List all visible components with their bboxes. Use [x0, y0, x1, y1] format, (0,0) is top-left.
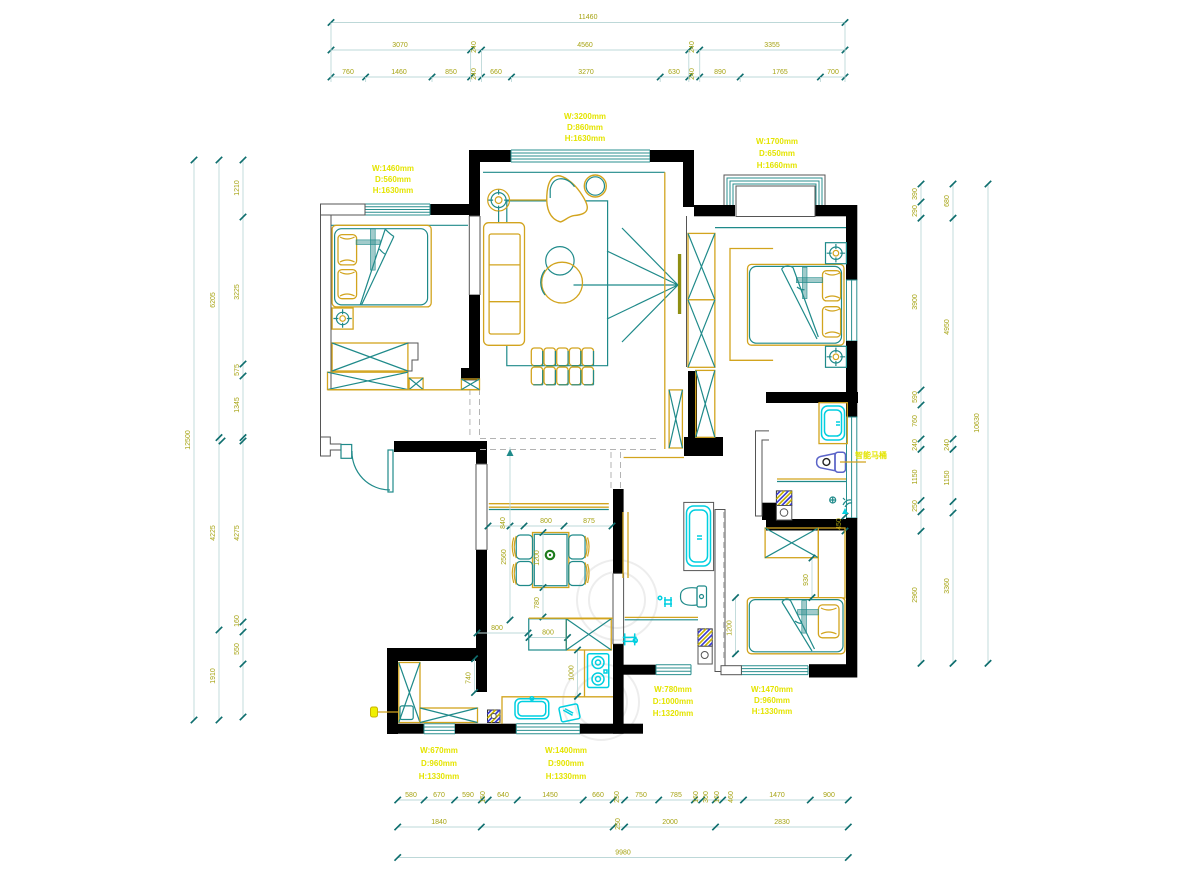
svg-text:1460: 1460	[391, 69, 407, 76]
svg-text:3360: 3360	[944, 578, 951, 594]
svg-text:240: 240	[471, 41, 478, 53]
svg-text:W:780mm: W:780mm	[654, 685, 692, 694]
svg-text:11460: 11460	[579, 14, 598, 21]
svg-text:W:1400mm: W:1400mm	[545, 746, 587, 755]
svg-text:640: 640	[497, 792, 509, 799]
svg-text:3070: 3070	[392, 42, 408, 49]
svg-text:240: 240	[689, 68, 696, 80]
svg-text:875: 875	[583, 518, 595, 525]
svg-text:750: 750	[635, 792, 647, 799]
svg-text:390: 390	[912, 188, 919, 200]
svg-text:2960: 2960	[912, 587, 919, 603]
svg-text:780: 780	[534, 597, 541, 609]
svg-text:740: 740	[466, 672, 473, 684]
svg-text:1200: 1200	[727, 620, 734, 636]
svg-text:智能马桶: 智能马桶	[855, 450, 887, 460]
svg-text:840: 840	[500, 517, 507, 529]
svg-text:D:900mm: D:900mm	[548, 759, 584, 768]
svg-text:680: 680	[944, 195, 951, 207]
svg-text:300: 300	[703, 791, 710, 803]
svg-text:240: 240	[689, 41, 696, 53]
svg-text:1345: 1345	[234, 397, 241, 413]
svg-text:800: 800	[542, 630, 554, 637]
svg-text:1910: 1910	[210, 668, 217, 684]
svg-text:150: 150	[480, 791, 487, 803]
svg-text:1450: 1450	[542, 792, 558, 799]
svg-text:12500: 12500	[185, 430, 192, 450]
svg-text:3355: 3355	[764, 42, 780, 49]
svg-text:760: 760	[342, 69, 354, 76]
svg-text:550: 550	[234, 643, 241, 655]
svg-text:4225: 4225	[210, 525, 217, 541]
svg-text:590: 590	[912, 391, 919, 403]
svg-text:4275: 4275	[234, 525, 241, 541]
svg-text:3270: 3270	[578, 69, 594, 76]
svg-text:H:1660mm: H:1660mm	[757, 161, 797, 170]
svg-text:1765: 1765	[772, 69, 788, 76]
svg-text:250: 250	[912, 500, 919, 512]
svg-text:H:1330mm: H:1330mm	[752, 707, 792, 716]
svg-text:6205: 6205	[210, 292, 217, 308]
svg-text:3900: 3900	[912, 294, 919, 310]
svg-text:575: 575	[234, 364, 241, 376]
svg-text:700: 700	[827, 69, 839, 76]
svg-text:800: 800	[491, 625, 503, 632]
svg-text:10630: 10630	[974, 413, 981, 433]
svg-text:590: 590	[462, 792, 474, 799]
svg-text:290: 290	[912, 205, 919, 217]
svg-text:1200: 1200	[534, 550, 541, 566]
svg-text:H:1630mm: H:1630mm	[373, 186, 413, 195]
svg-text:W:1470mm: W:1470mm	[751, 685, 793, 694]
svg-text:660: 660	[490, 69, 502, 76]
svg-text:250: 250	[615, 818, 622, 830]
svg-text:850: 850	[445, 69, 457, 76]
svg-text:890: 890	[714, 69, 726, 76]
svg-text:W:1700mm: W:1700mm	[756, 137, 798, 146]
svg-text:250: 250	[614, 791, 621, 803]
svg-text:760: 760	[912, 415, 919, 427]
svg-text:670: 670	[433, 792, 445, 799]
svg-text:D:960mm: D:960mm	[754, 696, 790, 705]
svg-text:785: 785	[670, 792, 682, 799]
svg-text:W:670mm: W:670mm	[420, 746, 458, 755]
svg-text:D:560mm: D:560mm	[375, 175, 411, 184]
svg-text:1470: 1470	[769, 792, 785, 799]
svg-text:H:1630mm: H:1630mm	[565, 134, 605, 143]
svg-text:240: 240	[471, 68, 478, 80]
svg-text:2000: 2000	[662, 819, 678, 826]
svg-text:1150: 1150	[912, 469, 919, 484]
svg-text:3225: 3225	[234, 284, 241, 300]
svg-text:D:960mm: D:960mm	[421, 759, 457, 768]
svg-text:W:1460mm: W:1460mm	[372, 164, 414, 173]
svg-text:630: 630	[668, 69, 680, 76]
svg-text:H:1330mm: H:1330mm	[419, 772, 459, 781]
svg-text:900: 900	[823, 792, 835, 799]
svg-text:9980: 9980	[615, 850, 631, 857]
svg-text:240: 240	[944, 439, 951, 451]
svg-text:1840: 1840	[431, 819, 447, 826]
svg-text:160: 160	[714, 791, 721, 803]
svg-text:160: 160	[693, 791, 700, 803]
svg-text:160: 160	[234, 615, 241, 627]
svg-text:800: 800	[540, 518, 552, 525]
svg-text:1000: 1000	[569, 665, 576, 681]
svg-text:D:860mm: D:860mm	[567, 123, 603, 132]
svg-text:1210: 1210	[234, 180, 241, 196]
svg-text:4560: 4560	[577, 42, 593, 49]
svg-text:D:1000mm: D:1000mm	[653, 697, 693, 706]
svg-text:1150: 1150	[944, 470, 951, 485]
svg-text:2830: 2830	[774, 819, 790, 826]
svg-text:580: 580	[405, 792, 417, 799]
svg-text:H:1330mm: H:1330mm	[546, 772, 586, 781]
svg-text:460: 460	[728, 791, 735, 803]
svg-text:D:650mm: D:650mm	[759, 149, 795, 158]
svg-text:660: 660	[592, 792, 604, 799]
svg-text:930: 930	[803, 574, 810, 586]
svg-text:W:3200mm: W:3200mm	[564, 112, 606, 121]
svg-text:240: 240	[912, 439, 919, 451]
svg-text:4950: 4950	[944, 319, 951, 335]
svg-text:2560: 2560	[501, 549, 508, 565]
svg-text:H:1320mm: H:1320mm	[653, 709, 693, 718]
